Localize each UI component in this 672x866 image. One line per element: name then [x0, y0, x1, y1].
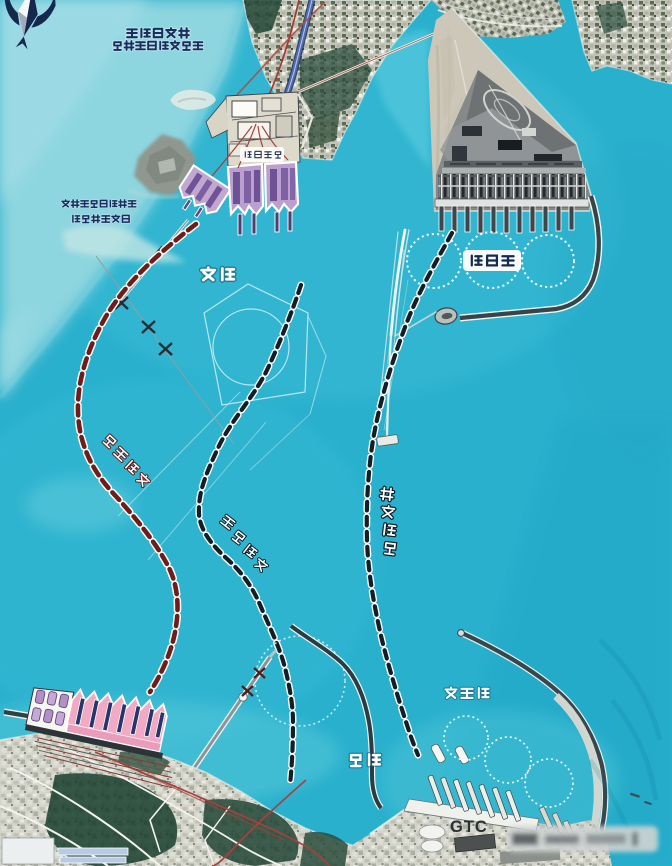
svg-text:GTC: GTC — [450, 818, 488, 836]
